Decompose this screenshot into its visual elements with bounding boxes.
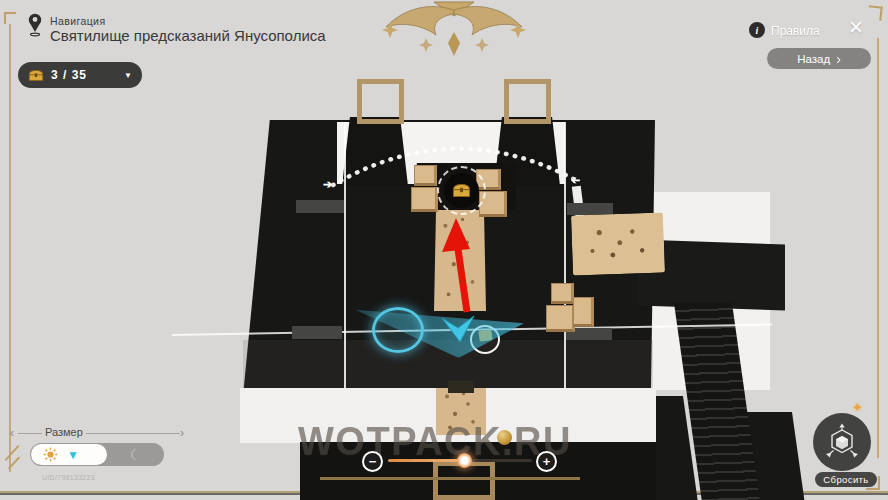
compass-emblem-ornament bbox=[372, 0, 536, 56]
zoom-slider-track-empty[interactable] bbox=[472, 459, 532, 462]
map-crate-dark bbox=[448, 381, 474, 393]
location-pin-icon bbox=[27, 12, 43, 37]
route-arrow bbox=[435, 214, 495, 320]
info-icon[interactable]: i bbox=[749, 22, 765, 38]
arc-arrow-left-icon: ➔ bbox=[323, 178, 332, 191]
map-screen: ➔ ➔ WOTPACK.RU Навигация Святилище предс… bbox=[0, 0, 888, 500]
site-watermark: WOTPACK.RU bbox=[298, 418, 572, 464]
back-button-label: Назад bbox=[797, 53, 830, 65]
reset-view-label: Сбросить bbox=[815, 472, 877, 487]
day-toggle-segment[interactable]: ▼ bbox=[31, 444, 107, 465]
map-ramp bbox=[567, 203, 613, 215]
zoom-slider-track-filled[interactable] bbox=[388, 459, 460, 462]
cube-3d-icon bbox=[824, 423, 860, 461]
zoom-slider-knob[interactable] bbox=[457, 453, 472, 468]
arc-arrow-right-icon: ➔ bbox=[571, 174, 580, 187]
day-night-toggle[interactable]: ▼ bbox=[30, 443, 164, 466]
size-slider-label: Размер bbox=[42, 426, 86, 438]
night-toggle-segment[interactable] bbox=[129, 447, 142, 465]
patrol-arc-path bbox=[320, 124, 592, 196]
zoom-in-button[interactable]: + bbox=[536, 451, 557, 472]
size-slider-left-caret[interactable]: ‹ bbox=[10, 426, 14, 440]
map-gate-frame-left bbox=[357, 79, 404, 124]
navigation-section-label: Навигация bbox=[50, 15, 105, 27]
map-crate bbox=[546, 305, 575, 332]
toggle-indicator-icon: ▼ bbox=[67, 448, 79, 462]
chest-counter-dropdown[interactable]: 3 / 35 ▼ bbox=[18, 62, 142, 88]
size-slider-right-caret[interactable]: › bbox=[180, 426, 184, 440]
back-button[interactable]: Назад › bbox=[767, 48, 871, 69]
chest-counter-icon bbox=[28, 69, 44, 82]
uid-watermark: UID/798133223 bbox=[42, 474, 95, 481]
map-crate bbox=[551, 283, 574, 304]
chevron-down-icon: ▼ bbox=[124, 71, 132, 80]
map-crate bbox=[573, 297, 594, 327]
map-gold-rail bbox=[320, 477, 580, 480]
reset-view-button[interactable] bbox=[813, 413, 871, 471]
close-icon[interactable]: ✕ bbox=[848, 16, 864, 39]
sun-icon bbox=[43, 447, 58, 462]
chevron-right-icon: › bbox=[836, 51, 841, 67]
zoom-out-button[interactable]: − bbox=[362, 451, 383, 472]
map-ramp bbox=[296, 200, 344, 213]
chest-counter-value: 3 / 35 bbox=[51, 68, 87, 82]
map-carpet-platform bbox=[571, 212, 665, 275]
map-gate-frame-right bbox=[504, 79, 551, 124]
player-position-ring bbox=[372, 307, 424, 353]
rules-link[interactable]: Правила bbox=[771, 24, 820, 38]
map-gold-ornament bbox=[497, 430, 512, 445]
sparkle-icon: ✦ bbox=[852, 400, 863, 415]
map-ramp bbox=[292, 326, 342, 339]
moon-icon bbox=[129, 448, 142, 461]
page-title: Святилище предсказаний Янусополиса bbox=[50, 27, 326, 44]
